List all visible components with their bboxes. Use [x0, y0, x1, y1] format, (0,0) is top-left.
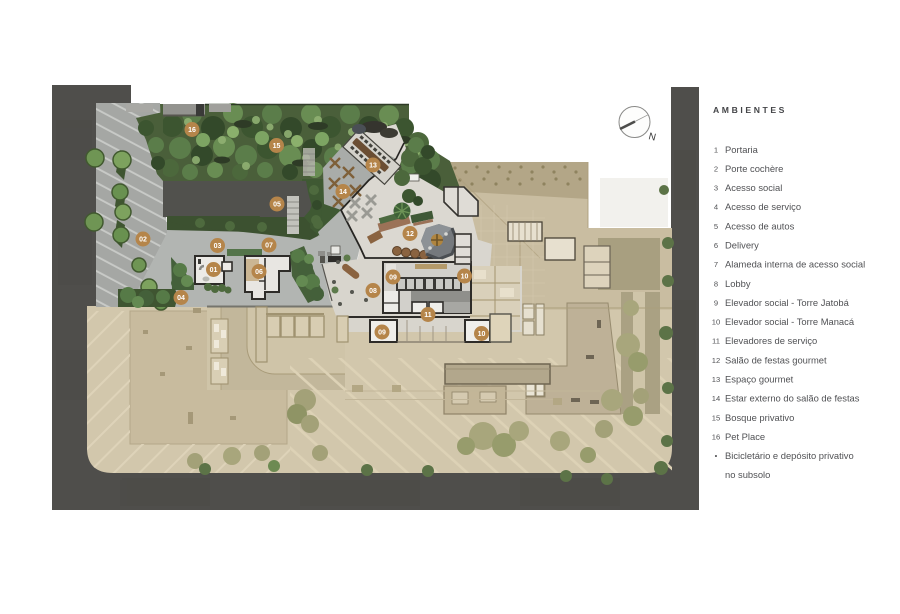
svg-text:no subsolo: no subsolo — [725, 469, 770, 480]
svg-text:03: 03 — [214, 243, 222, 250]
svg-text:10: 10 — [712, 318, 720, 327]
svg-text:5: 5 — [714, 222, 718, 231]
svg-text:02: 02 — [139, 237, 147, 244]
svg-text:09: 09 — [389, 275, 397, 282]
svg-text:AMBIENTES: AMBIENTES — [713, 105, 787, 115]
svg-text:14: 14 — [339, 189, 347, 196]
svg-text:15: 15 — [712, 413, 720, 422]
svg-text:09: 09 — [378, 330, 386, 337]
svg-text:13: 13 — [369, 163, 377, 170]
svg-text:11: 11 — [712, 337, 720, 346]
svg-text:15: 15 — [273, 143, 281, 150]
svg-text:Estar externo do salão de fest: Estar externo do salão de festas — [725, 393, 860, 404]
svg-text:10: 10 — [478, 331, 486, 338]
svg-text:Salão de festas gourmet: Salão de festas gourmet — [725, 354, 827, 365]
svg-text:1: 1 — [714, 145, 718, 154]
svg-text:6: 6 — [714, 241, 718, 250]
svg-text:3: 3 — [714, 184, 718, 193]
svg-text:•: • — [715, 452, 718, 461]
svg-text:Acesso social: Acesso social — [725, 182, 782, 193]
svg-text:8: 8 — [714, 279, 718, 288]
svg-text:Alameda interna de acesso soci: Alameda interna de acesso social — [725, 259, 865, 270]
svg-text:Acesso de serviço: Acesso de serviço — [725, 201, 801, 212]
svg-text:Delivery: Delivery — [725, 240, 759, 251]
svg-text:2: 2 — [714, 164, 718, 173]
svg-text:14: 14 — [712, 394, 720, 403]
svg-text:07: 07 — [265, 243, 273, 250]
svg-text:Elevador social - Torre Manacá: Elevador social - Torre Manacá — [725, 316, 855, 327]
svg-text:08: 08 — [369, 288, 377, 295]
svg-text:04: 04 — [177, 295, 185, 302]
svg-text:Pet Place: Pet Place — [725, 431, 765, 442]
svg-text:Lobby: Lobby — [725, 278, 751, 289]
svg-text:Acesso de autos: Acesso de autos — [725, 220, 795, 231]
svg-text:10: 10 — [461, 274, 469, 281]
svg-text:7: 7 — [714, 260, 718, 269]
svg-text:01: 01 — [210, 267, 218, 274]
svg-text:Elevador social - Torre Jatobá: Elevador social - Torre Jatobá — [725, 297, 850, 308]
svg-text:Bosque privativo: Bosque privativo — [725, 412, 794, 423]
svg-text:12: 12 — [406, 231, 414, 238]
svg-text:16: 16 — [188, 127, 196, 134]
svg-text:Elevadores de serviço: Elevadores de serviço — [725, 335, 817, 346]
svg-text:05: 05 — [273, 202, 281, 209]
svg-text:Espaço gourmet: Espaço gourmet — [725, 374, 794, 385]
svg-text:11: 11 — [424, 312, 432, 319]
svg-text:06: 06 — [255, 269, 263, 276]
svg-text:Bicicletário e depósito privat: Bicicletário e depósito privativo — [725, 450, 854, 461]
svg-text:Porte cochère: Porte cochère — [725, 163, 783, 174]
svg-text:4: 4 — [714, 203, 718, 212]
svg-text:16: 16 — [712, 432, 720, 441]
svg-text:12: 12 — [712, 356, 720, 365]
svg-text:9: 9 — [714, 298, 718, 307]
svg-text:13: 13 — [712, 375, 720, 384]
svg-text:Portaria: Portaria — [725, 144, 759, 155]
